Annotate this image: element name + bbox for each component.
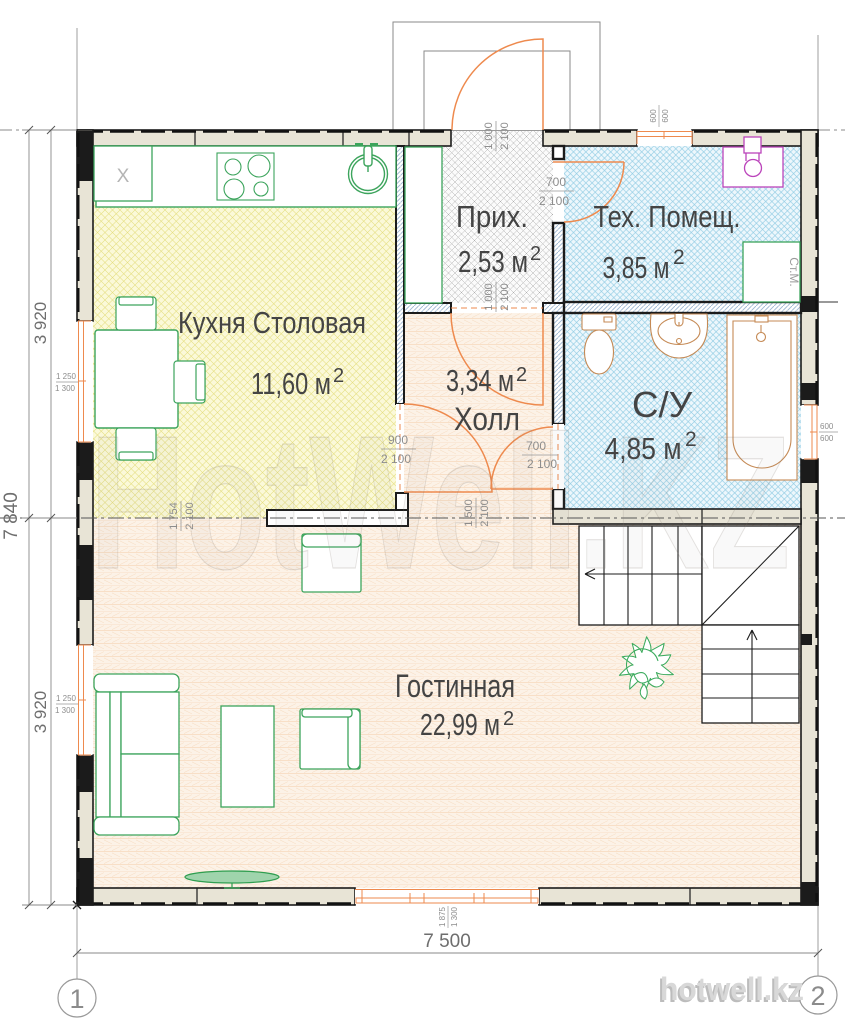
svg-text:1 300: 1 300 <box>55 384 76 393</box>
svg-text:2: 2 <box>673 246 685 269</box>
svg-text:3 920: 3 920 <box>31 302 50 345</box>
svg-text:600: 600 <box>820 422 834 431</box>
svg-text:2,53 м: 2,53 м <box>458 244 528 279</box>
svg-text:2 100: 2 100 <box>539 194 569 208</box>
svg-text:2: 2 <box>333 365 344 387</box>
svg-text:600: 600 <box>649 109 658 123</box>
svg-text:Прих.: Прих. <box>456 199 528 234</box>
svg-text:7 500: 7 500 <box>423 931 471 952</box>
svg-text:Тех. Помещ.: Тех. Помещ. <box>594 199 741 234</box>
svg-text:Ст.М.: Ст.М. <box>787 257 801 287</box>
svg-text:700: 700 <box>546 175 566 189</box>
svg-text:2 100: 2 100 <box>499 283 511 311</box>
svg-text:600: 600 <box>661 109 670 123</box>
svg-text:Кухня Столовая: Кухня Столовая <box>178 305 366 340</box>
svg-text:1 250: 1 250 <box>56 372 77 381</box>
svg-text:2: 2 <box>810 981 825 1011</box>
svg-text:HotWell.KZ: HotWell.KZ <box>90 397 790 609</box>
svg-text:2: 2 <box>503 708 514 730</box>
svg-text:X: X <box>117 166 130 187</box>
svg-text:3 920: 3 920 <box>31 691 50 734</box>
svg-text:Гостинная: Гостинная <box>395 668 515 704</box>
svg-text:1 875: 1 875 <box>438 906 447 927</box>
svg-text:7 840: 7 840 <box>1 492 22 540</box>
svg-text:3,85 м: 3,85 м <box>603 250 670 285</box>
svg-text:1 300: 1 300 <box>55 706 76 715</box>
svg-text:2: 2 <box>516 364 527 386</box>
svg-text:1 000: 1 000 <box>483 122 495 150</box>
svg-text:hotwell.kz: hotwell.kz <box>660 971 804 1007</box>
svg-text:1: 1 <box>69 984 84 1014</box>
svg-text:22,99 м: 22,99 м <box>420 707 500 742</box>
svg-text:11,60 м: 11,60 м <box>251 366 331 401</box>
svg-text:2: 2 <box>530 243 541 265</box>
svg-text:1 300: 1 300 <box>450 906 459 927</box>
svg-text:3,34 м: 3,34 м <box>446 363 514 398</box>
svg-text:1 000: 1 000 <box>483 283 495 311</box>
svg-text:1 250: 1 250 <box>56 694 77 703</box>
svg-text:600: 600 <box>820 434 834 443</box>
svg-text:2 100: 2 100 <box>499 122 511 150</box>
